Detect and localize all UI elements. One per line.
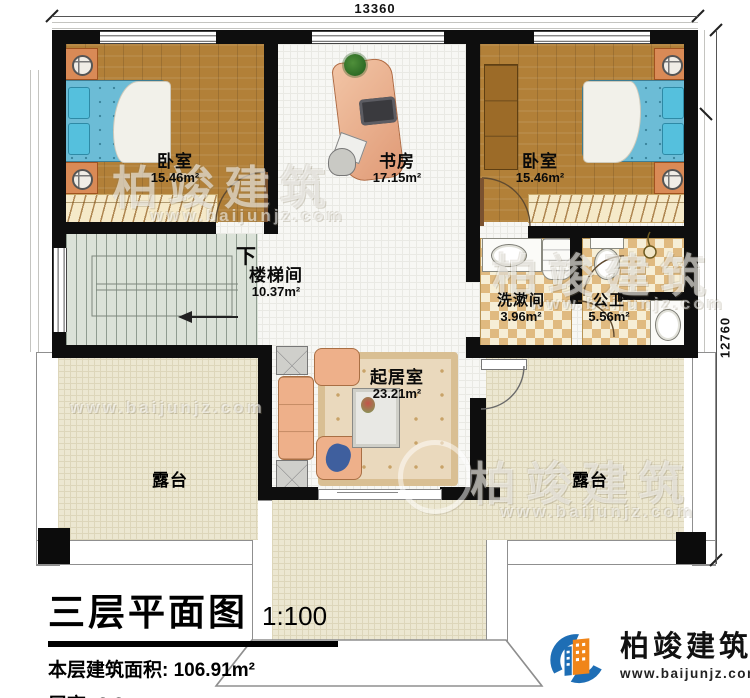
room-area: 17.15m² <box>352 171 442 186</box>
room-name: 洗漱间 <box>486 293 556 310</box>
room-name: 卧室 <box>495 152 585 171</box>
dimension-ticks <box>46 10 722 566</box>
room-label-terrace-left: 露台 <box>152 466 188 491</box>
room-area: 15.46m² <box>495 171 585 186</box>
room-label-living: 起居室 23.21m² <box>352 368 442 402</box>
stair-arrow <box>178 311 238 323</box>
room-area: 15.46m² <box>130 171 220 186</box>
room-area: 5.56m² <box>576 310 642 325</box>
logo-icon <box>548 626 610 688</box>
area-value: 106.91m² <box>174 660 255 681</box>
room-area: 10.37m² <box>228 285 324 300</box>
room-label-bedroom-left: 卧室 15.46m² <box>130 152 220 186</box>
room-name: 卧室 <box>130 152 220 171</box>
room-label-stairwell: 楼梯间 10.37m² <box>228 266 324 300</box>
area-label: 本层建筑面积: <box>48 660 168 681</box>
dimension-right-value: 12760 <box>718 303 733 373</box>
stair-direction-label: 下 <box>236 240 256 269</box>
room-label-washroom: 洗漱间 3.96m² <box>486 293 556 324</box>
room-name: 起居室 <box>352 368 442 387</box>
company-logo: 柏竣建筑 www.baijunjz.com <box>548 626 750 688</box>
logo-website: www.baijunjz.com <box>620 666 750 681</box>
room-name: 书房 <box>352 152 442 171</box>
stair-treads <box>92 256 238 316</box>
dimension-line-top <box>52 16 698 17</box>
room-label-study: 书房 17.15m² <box>352 152 442 186</box>
room-label-toilet: 公卫 5.56m² <box>576 293 642 324</box>
room-label-bedroom-right: 卧室 15.46m² <box>495 152 585 186</box>
room-label-terrace-right: 露台 <box>572 466 608 491</box>
title-underline <box>48 641 338 647</box>
room-area: 23.21m² <box>352 387 442 402</box>
shower-head-icon <box>644 232 656 258</box>
plan-scale: 1:100 <box>262 601 327 631</box>
plan-title: 三层平面图 <box>48 592 248 633</box>
room-name: 楼梯间 <box>228 266 324 285</box>
room-area: 3.96m² <box>486 310 556 325</box>
logo-company-name: 柏竣建筑 <box>620 633 750 662</box>
dimension-line-right <box>716 30 717 564</box>
title-block: 三层平面图1:100 本层建筑面积: 106.91m² 层高: 3.3m <box>48 582 348 698</box>
dimension-top-value: 13360 <box>330 1 420 16</box>
floor-plan-canvas: 13360 12760 柏竣建筑 www.baijunjz.com 柏竣建筑 w… <box>0 0 750 698</box>
room-name: 公卫 <box>576 293 642 310</box>
